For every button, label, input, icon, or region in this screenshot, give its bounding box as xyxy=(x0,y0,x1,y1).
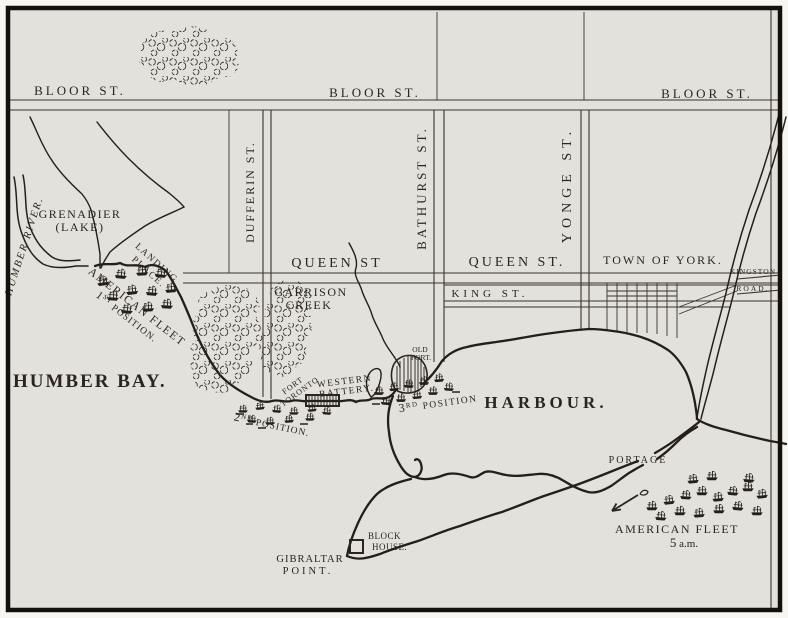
label-block-house: HOUSE. xyxy=(372,542,407,552)
label-bloor-st-east: BLOOR ST. xyxy=(661,86,753,101)
label-american-fleet-5am: AMERICAN FLEET xyxy=(615,522,739,536)
label-king-st: KING ST. xyxy=(451,288,528,300)
label-humber-bay: HUMBER BAY. xyxy=(13,371,167,392)
label-garrison-creek: CREEK xyxy=(286,298,333,312)
label-portage: PORTAGE xyxy=(609,455,668,466)
label-5am: 5 a.m. xyxy=(670,535,698,550)
label-kingston-road: ROAD. xyxy=(736,284,769,293)
label-dufferin-st: DUFFERIN ST. xyxy=(243,141,257,243)
label-grenadier: GRENADIER xyxy=(39,207,122,221)
label-kingston: KINGSTON xyxy=(730,267,776,276)
label-gibraltar: GIBRALTAR xyxy=(276,554,343,565)
label-garrison: GARRISON xyxy=(274,285,347,299)
label-bloor-st-west: BLOOR ST. xyxy=(34,83,126,98)
label-grenadier-lake: (LAKE) xyxy=(56,220,105,234)
label-queen-st-east: QUEEN ST. xyxy=(469,255,566,270)
label-bathurst-st: BATHURST ST. xyxy=(414,126,429,250)
label-queen-st-west: QUEEN ST xyxy=(291,256,382,271)
label-yonge-st: YONGE ST. xyxy=(560,127,575,243)
label-block: BLOCK xyxy=(368,531,401,541)
label-gibraltar-point: POINT. xyxy=(283,566,334,577)
label-town-of-york: TOWN OF YORK. xyxy=(603,253,723,267)
map-canvas: BLOOR ST. BLOOR ST. BLOOR ST. DUFFERIN S… xyxy=(0,0,788,618)
label-harbour: HARBOUR. xyxy=(484,393,607,412)
label-old-fort: FORT. xyxy=(411,353,431,362)
battle-of-york-map: BLOOR ST. BLOOR ST. BLOOR ST. DUFFERIN S… xyxy=(0,0,788,618)
label-bloor-st-mid: BLOOR ST. xyxy=(329,85,421,100)
